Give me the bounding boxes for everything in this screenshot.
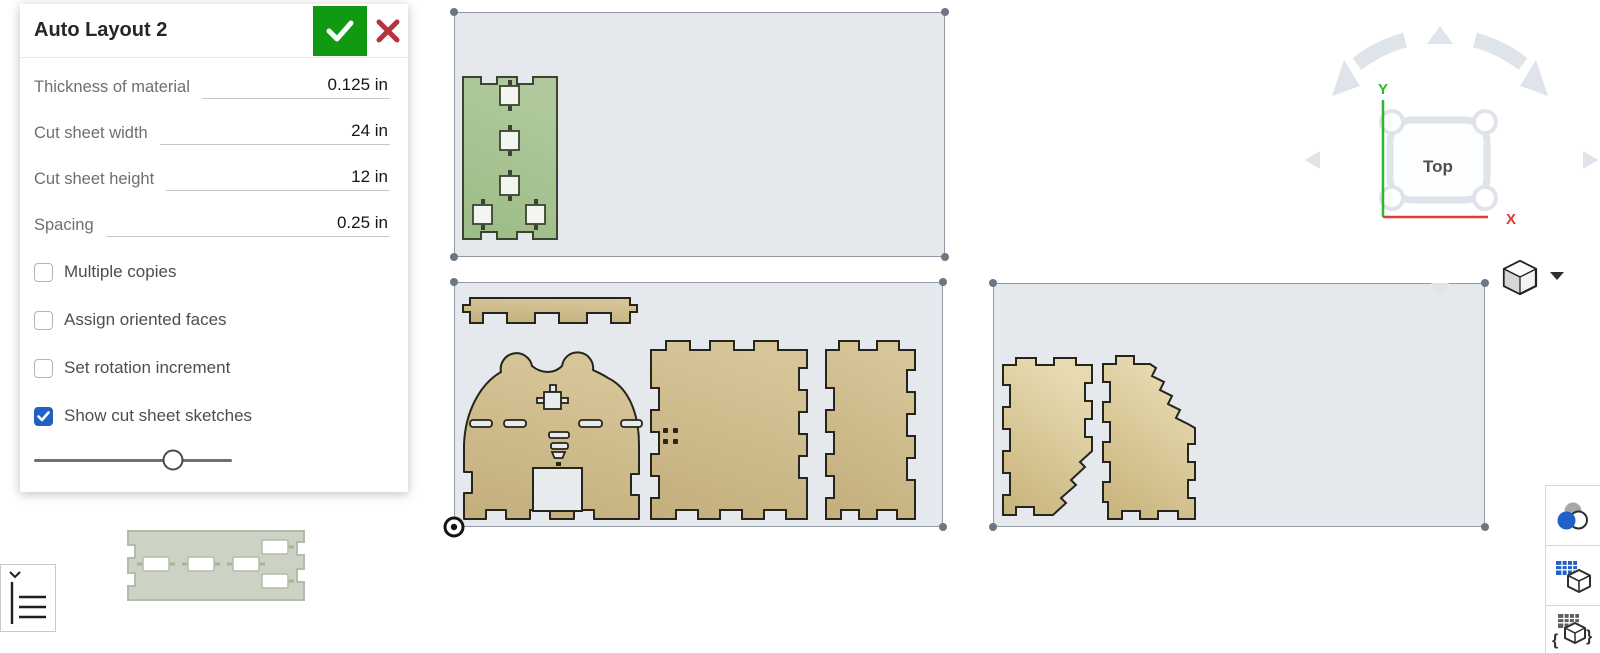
part-finger-joint-panel-narrow[interactable] (823, 338, 918, 522)
checkbox-row: Assign oriented faces (34, 296, 390, 344)
part-finger-joint-panel-large[interactable] (648, 338, 810, 522)
slider-handle[interactable] (162, 450, 183, 471)
slider-track[interactable] (34, 459, 232, 462)
view-face-label[interactable]: Top (1423, 157, 1453, 176)
sheet-vertex (941, 8, 949, 16)
assign-oriented-faces-label: Assign oriented faces (64, 310, 227, 330)
show-cut-sheet-sketches-checkbox[interactable] (34, 407, 53, 426)
spacing-input[interactable]: 0.25 in (106, 213, 390, 237)
field-row: Cut sheet height 12 in (34, 156, 390, 202)
sheet-vertex (989, 279, 997, 287)
configuration-table-button[interactable]: { } (1546, 606, 1600, 653)
field-row: Spacing 0.25 in (34, 202, 390, 248)
checkbox-row: Show cut sheet sketches (34, 392, 390, 440)
application-canvas: Top Y X (0, 0, 1600, 653)
table-cube-braces-icon: { } (1552, 612, 1594, 650)
spacing-label: Spacing (34, 216, 94, 235)
field-row: Cut sheet width 24 in (34, 110, 390, 156)
axis-x-label: X (1506, 211, 1516, 228)
multiple-copies-checkbox[interactable] (34, 263, 53, 282)
field-row: Thickness of material 0.125 in (34, 64, 390, 110)
axis-y-label: Y (1378, 81, 1388, 98)
sheet-vertex (450, 8, 458, 16)
part-pale-slotted-strip[interactable] (122, 528, 310, 603)
dialog-body: Thickness of material 0.125 in Cut sheet… (20, 58, 408, 492)
sheet-width-input[interactable]: 24 in (160, 121, 390, 145)
right-display-toolbar: { } (1545, 485, 1600, 653)
part-side-panel-right[interactable] (1100, 352, 1198, 523)
confirm-button[interactable] (313, 6, 367, 56)
view-display-control[interactable] (1498, 256, 1568, 300)
set-rotation-increment-checkbox[interactable] (34, 359, 53, 378)
cancel-button[interactable] (367, 6, 408, 56)
color-circles-icon (1556, 500, 1590, 532)
part-animal-face-panel[interactable] (456, 332, 646, 523)
named-views-table-button[interactable] (1546, 546, 1600, 606)
sketch-origin-marker[interactable] (441, 514, 467, 540)
sheet-width-label: Cut sheet width (34, 124, 148, 143)
check-icon (325, 18, 355, 44)
table-cube-icon (1554, 558, 1592, 594)
checkbox-row: Set rotation increment (34, 344, 390, 392)
feature-list-icon (6, 570, 50, 626)
assign-oriented-faces-checkbox[interactable] (34, 311, 53, 330)
sheet-height-label: Cut sheet height (34, 170, 154, 189)
sheet-vertex (1481, 523, 1489, 531)
show-cut-sheet-sketches-label: Show cut sheet sketches (64, 406, 252, 426)
sheet-vertex (989, 523, 997, 531)
appearance-panel-button[interactable] (1546, 486, 1600, 546)
multiple-copies-label: Multiple copies (64, 262, 176, 282)
svg-text:{: { (1552, 632, 1558, 649)
set-rotation-increment-label: Set rotation increment (64, 358, 230, 378)
sheet-vertex (450, 253, 458, 261)
part-notched-strip[interactable] (460, 296, 641, 326)
checkbox-row: Multiple copies (34, 248, 390, 296)
sheet-vertex (939, 523, 947, 531)
sheet-vertex (450, 278, 458, 286)
x-icon (376, 19, 400, 43)
dialog-title: Auto Layout 2 (34, 19, 167, 42)
dialog-header: Auto Layout 2 (20, 4, 408, 58)
shaded-view-cube-icon[interactable] (1504, 261, 1536, 294)
part-green-slotted-panel[interactable] (460, 68, 560, 248)
preview-slider[interactable] (34, 440, 232, 480)
part-side-panel-left[interactable] (1000, 355, 1095, 518)
sheet-height-input[interactable]: 12 in (166, 167, 390, 191)
svg-text:}: } (1586, 628, 1592, 645)
auto-layout-dialog: Auto Layout 2 Thickness of material 0.12… (20, 4, 408, 492)
sheet-vertex (939, 278, 947, 286)
feature-list-toggle[interactable] (0, 564, 56, 632)
sheet-vertex (941, 253, 949, 261)
thickness-label: Thickness of material (34, 78, 190, 97)
thickness-input[interactable]: 0.125 in (202, 75, 390, 99)
chevron-down-icon[interactable] (1550, 272, 1564, 280)
